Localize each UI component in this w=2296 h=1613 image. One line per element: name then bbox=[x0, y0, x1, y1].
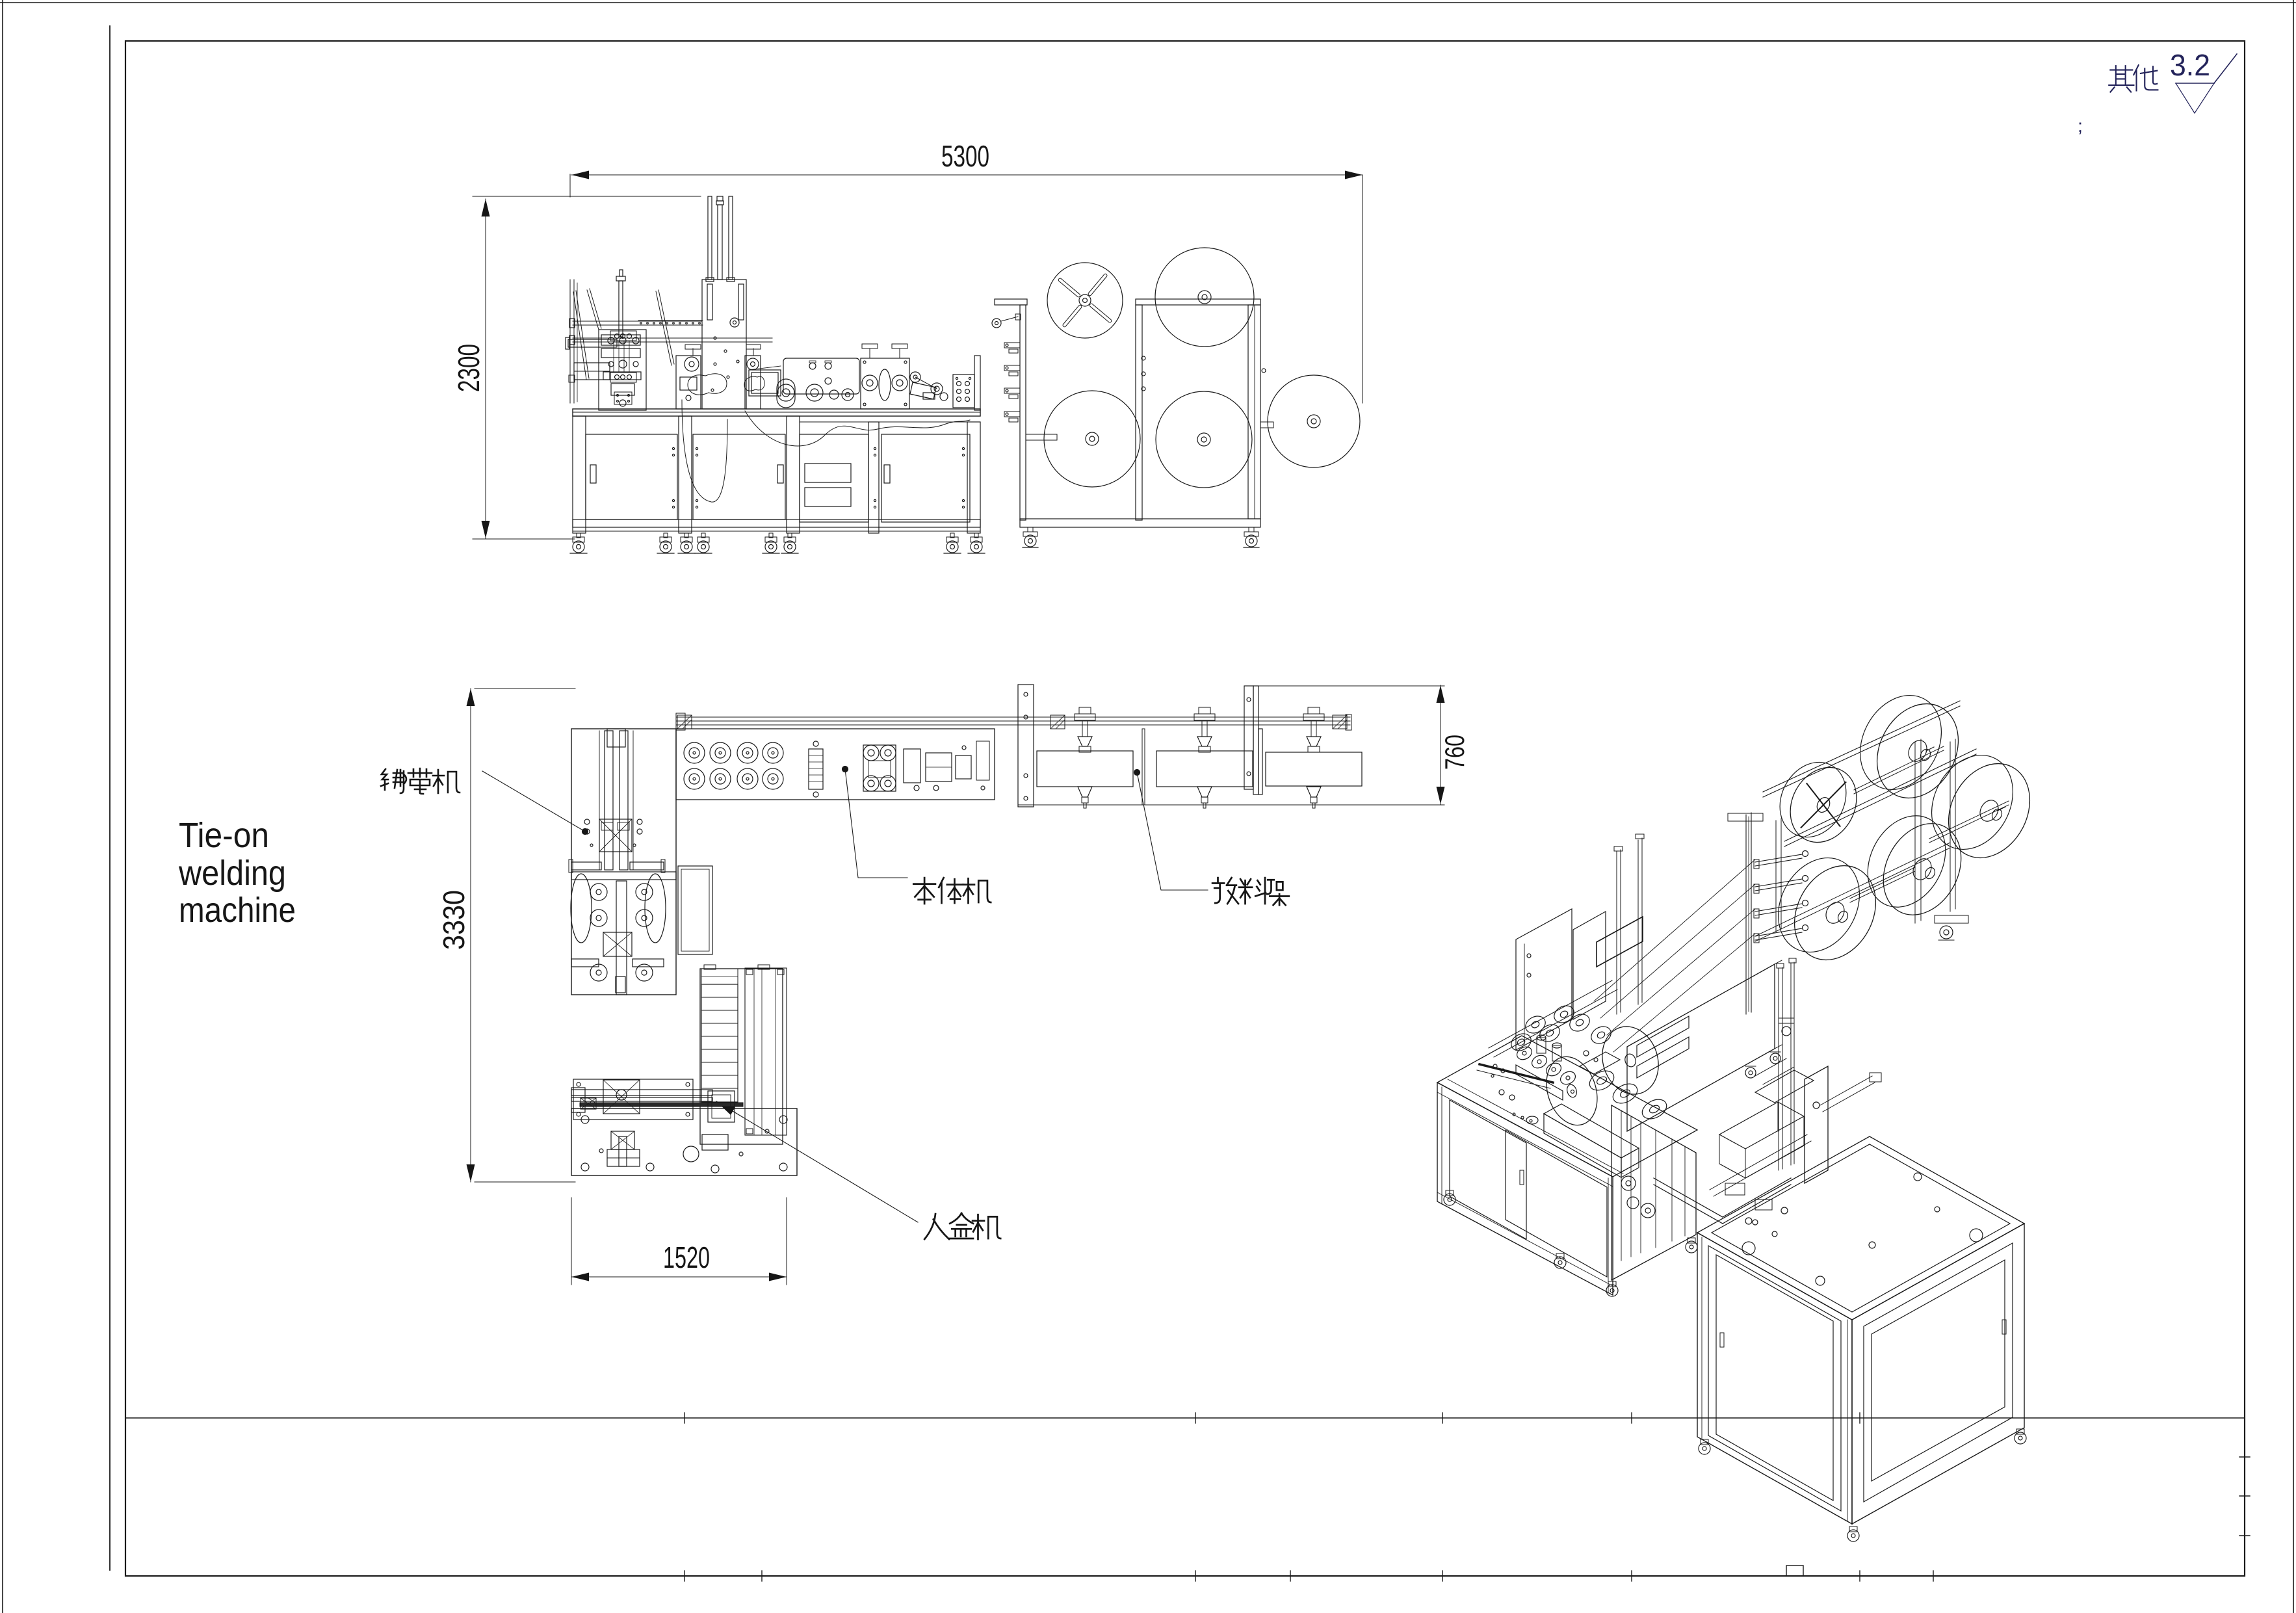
svg-text:760: 760 bbox=[1439, 735, 1470, 770]
svg-text:3.2: 3.2 bbox=[2170, 48, 2210, 82]
svg-text:;: ; bbox=[2078, 116, 2083, 136]
svg-text:welding: welding bbox=[178, 854, 286, 893]
svg-text:5300: 5300 bbox=[941, 139, 989, 173]
svg-text:1520: 1520 bbox=[663, 1240, 710, 1274]
svg-text:3330: 3330 bbox=[437, 890, 471, 950]
svg-text:2300: 2300 bbox=[452, 344, 486, 392]
svg-text:Tie-on: Tie-on bbox=[179, 816, 269, 855]
svg-text:machine: machine bbox=[179, 891, 296, 930]
